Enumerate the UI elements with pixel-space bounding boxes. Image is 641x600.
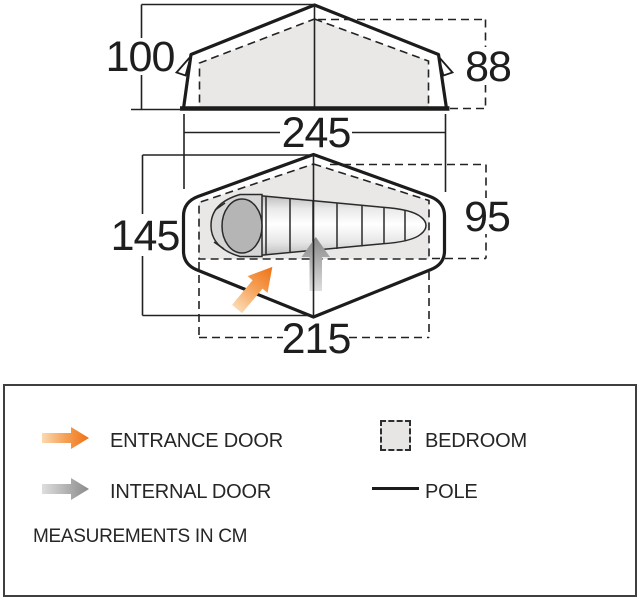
tent-dimensions-diagram: 100 88 245 (0, 0, 641, 600)
dim-215-label: 215 (282, 315, 351, 363)
tent-side-view (177, 5, 453, 109)
entrance-door-arrow-icon (42, 427, 89, 449)
tent-drawing: 100 88 245 (0, 0, 641, 380)
dim-100-label: 100 (106, 33, 175, 81)
entrance-door-label: ENTRANCE DOOR (110, 430, 283, 453)
measurements-note: MEASUREMENTS IN CM (33, 526, 247, 548)
legend-box: ENTRANCE DOOR BEDROOM INTERNAL DOOR POLE… (3, 384, 637, 597)
dim-95-label: 95 (464, 193, 510, 241)
dim-88-label: 88 (465, 43, 511, 91)
pole-label: POLE (425, 481, 478, 504)
tent-plan-view (184, 155, 445, 318)
pole-line-sample (372, 487, 419, 490)
internal-door-arrow-icon (42, 478, 89, 500)
bedroom-swatch (380, 420, 411, 451)
bedroom-label: BEDROOM (425, 430, 527, 453)
dim-245-label: 245 (282, 109, 351, 157)
sleeping-bag-face-opening (222, 199, 262, 253)
dim-145-label: 145 (111, 212, 180, 260)
internal-door-label: INTERNAL DOOR (110, 481, 271, 504)
